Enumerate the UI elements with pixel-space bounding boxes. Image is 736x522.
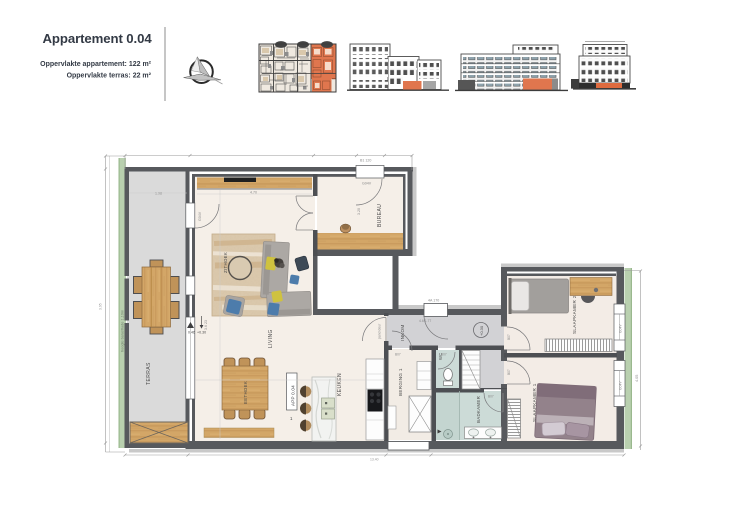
svg-text:BERGING 1: BERGING 1	[398, 368, 403, 396]
svg-text:1.98: 1.98	[155, 192, 162, 196]
svg-text:4A 170: 4A 170	[428, 299, 439, 303]
svg-text:B07: B07	[507, 334, 511, 340]
svg-text:hoogte balustrade 1,10m: hoogte balustrade 1,10m	[121, 310, 125, 352]
svg-text:+0.30: +0.30	[479, 325, 484, 336]
svg-text:G04V: G04V	[362, 182, 372, 186]
svg-text:B07: B07	[507, 369, 511, 375]
svg-text:TERRAS: TERRAS	[146, 362, 152, 385]
svg-text:Oppervlakte appartement: 122 m: Oppervlakte appartement: 122 m²	[40, 61, 152, 68]
svg-text:EETHOEK: EETHOEK	[243, 381, 248, 404]
svg-text:B07: B07	[488, 395, 494, 399]
svg-text:BUREAU: BUREAU	[377, 204, 383, 227]
svg-text:G04V: G04V	[619, 381, 623, 390]
svg-text:SLAAPKAMER 1: SLAAPKAMER 1	[532, 383, 537, 422]
svg-text:SLAAPKAMER 2: SLAAPKAMER 2	[572, 295, 577, 334]
svg-text:B07: B07	[441, 353, 447, 357]
svg-text:3.95: 3.95	[99, 303, 103, 310]
svg-text:INKOM: INKOM	[400, 324, 405, 341]
svg-text:LIVING: LIVING	[268, 329, 274, 348]
svg-text:Appartement 0.04: Appartement 0.04	[43, 31, 153, 46]
svg-text:4.05: 4.05	[635, 375, 639, 382]
svg-text:APP 0.04: APP 0.04	[291, 385, 296, 406]
svg-text:3.6 23: 3.6 23	[204, 320, 208, 330]
svg-text:4.6 1.77: 4.6 1.77	[419, 319, 431, 323]
svg-text:B1 120: B1 120	[360, 159, 371, 163]
svg-text:G04V: G04V	[198, 211, 202, 221]
svg-text:G04V: G04V	[619, 324, 623, 333]
svg-text:BADKAMER: BADKAMER	[476, 396, 481, 423]
svg-text:+0.30: +0.30	[197, 331, 206, 335]
svg-text:Oppervlakte terras: 22 m²: Oppervlakte terras: 22 m²	[67, 73, 152, 80]
svg-text:13.40: 13.40	[370, 458, 379, 462]
svg-text:3.20: 3.20	[357, 208, 361, 215]
svg-text:0.46: 0.46	[188, 331, 195, 335]
svg-text:ZITHOEK: ZITHOEK	[223, 252, 228, 273]
svg-text:pand deur: pand deur	[378, 323, 382, 339]
svg-text:KEUKEN: KEUKEN	[337, 373, 343, 396]
svg-text:B07: B07	[395, 353, 401, 357]
